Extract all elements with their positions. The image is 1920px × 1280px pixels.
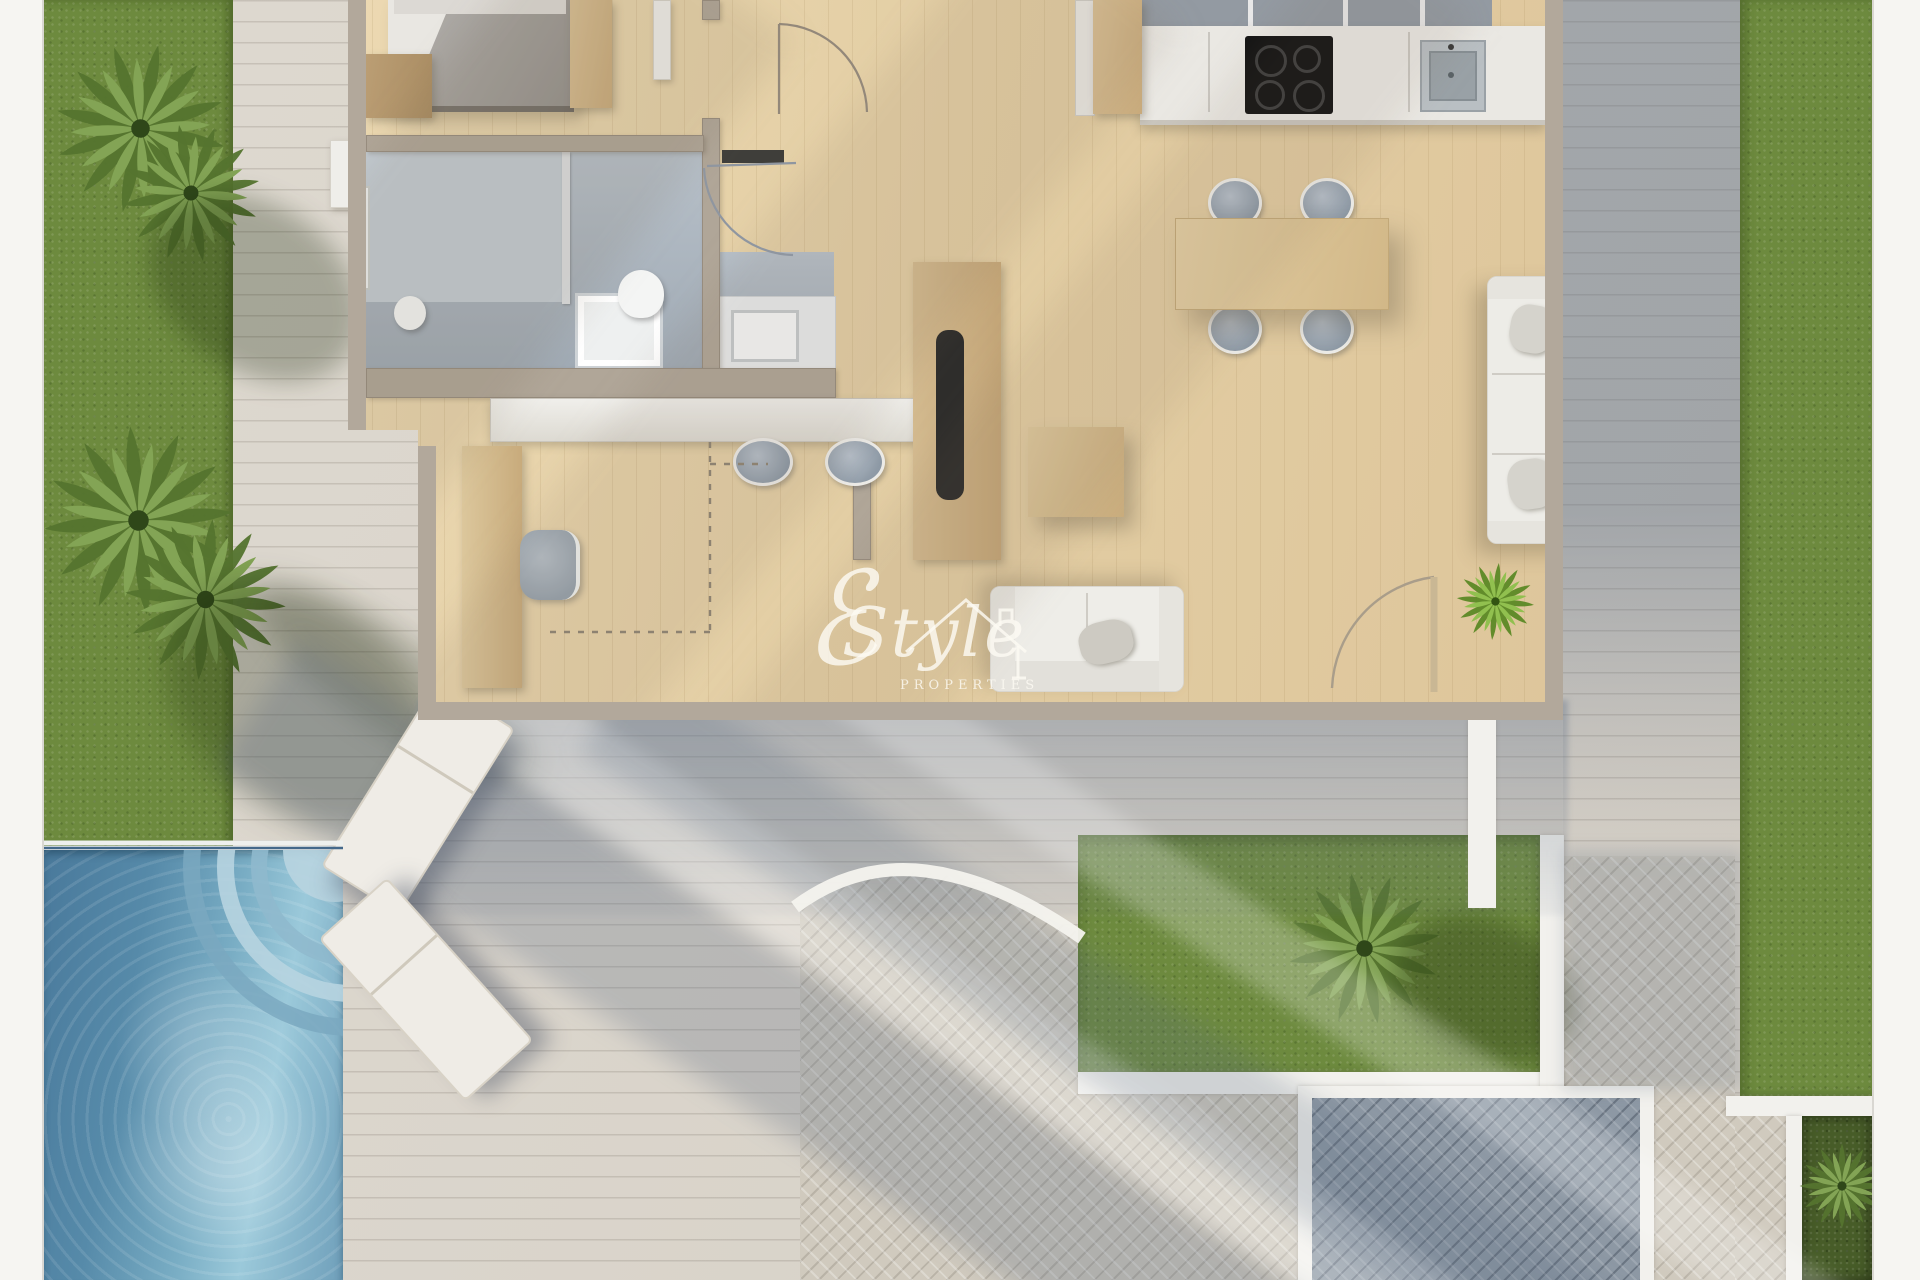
desk-stool xyxy=(825,438,885,486)
dining-chair xyxy=(1208,304,1262,354)
lounger-backrest-line xyxy=(397,745,473,794)
dining-chair xyxy=(1300,304,1354,354)
tv-screen xyxy=(936,330,964,500)
entrance-opening xyxy=(1330,702,1448,720)
path-herringbone xyxy=(1735,1116,1786,1280)
kitchen-end-panel xyxy=(1093,0,1142,114)
cooktop xyxy=(1245,36,1333,114)
window-segment xyxy=(1468,702,1528,720)
bathroom-window xyxy=(348,186,370,290)
bedroom-door-leaf xyxy=(653,0,671,80)
entrance-walkway xyxy=(1468,720,1496,908)
counter-seam xyxy=(1408,32,1410,112)
frame-right xyxy=(1872,0,1920,1280)
potted-plant-icon xyxy=(1429,546,1552,663)
window-segment xyxy=(1118,702,1268,720)
burner xyxy=(1255,80,1285,110)
vanity-counter xyxy=(704,296,836,370)
paved-pad-dark xyxy=(1312,1098,1640,1280)
swimming-pool xyxy=(42,846,343,1280)
burner xyxy=(1293,80,1325,112)
desk-stool xyxy=(733,438,793,486)
coffee-table xyxy=(1028,427,1124,517)
palm-tree-icon xyxy=(1269,853,1460,1044)
watermark-subtitle-text: PROPERTIES xyxy=(900,678,1039,693)
sofa-cushion xyxy=(1506,302,1558,357)
watermark-logo: ℰ Style PROPERTIES xyxy=(800,572,1130,712)
garden-strip-right xyxy=(1740,0,1872,1096)
window-segment xyxy=(468,702,596,720)
tv-cabinet xyxy=(913,262,1001,560)
bed-pillows xyxy=(394,0,566,14)
toilet xyxy=(618,270,664,318)
burner xyxy=(1255,45,1287,77)
watermark-house-icon xyxy=(888,590,1038,685)
counter-seam xyxy=(1208,32,1210,112)
sofa-seat-line xyxy=(1492,373,1554,375)
bedroom-dresser xyxy=(570,0,612,108)
cabinet-divider xyxy=(1248,0,1253,26)
sofa-cushion xyxy=(1505,456,1558,512)
kitchen-sink xyxy=(1420,40,1486,112)
path-border xyxy=(1540,835,1564,1094)
wall xyxy=(702,0,720,20)
desk-counter xyxy=(490,398,920,442)
wall xyxy=(366,368,836,398)
kitchen-upper-cabinets xyxy=(1140,0,1492,26)
loveseat-armrest xyxy=(1159,587,1183,691)
sofa-seat-line xyxy=(1492,453,1554,455)
path-border xyxy=(1726,1096,1872,1116)
wall xyxy=(366,135,704,152)
cabinet-divider xyxy=(1343,0,1348,26)
floorplan-scene: ℰ Style PROPERTIES xyxy=(0,0,1920,1280)
bathroom-sink xyxy=(394,296,426,330)
frame-left xyxy=(0,0,44,1280)
shower-area xyxy=(366,152,564,302)
wardrobe xyxy=(366,54,432,118)
study-chair xyxy=(520,530,580,600)
burner xyxy=(1293,45,1321,73)
sink-drain xyxy=(1448,72,1454,78)
kitchen-tall-cabinet xyxy=(1075,0,1095,116)
lounger-backrest-line xyxy=(370,934,437,995)
wall xyxy=(702,118,720,372)
cabinet-divider xyxy=(1420,0,1425,26)
window-segment xyxy=(618,702,783,720)
doormat xyxy=(722,150,784,163)
shower-divider xyxy=(562,152,570,304)
vanity-sink xyxy=(731,310,799,362)
sink-faucet xyxy=(1448,44,1454,50)
study-desk xyxy=(462,446,522,688)
dining-table xyxy=(1175,218,1389,310)
